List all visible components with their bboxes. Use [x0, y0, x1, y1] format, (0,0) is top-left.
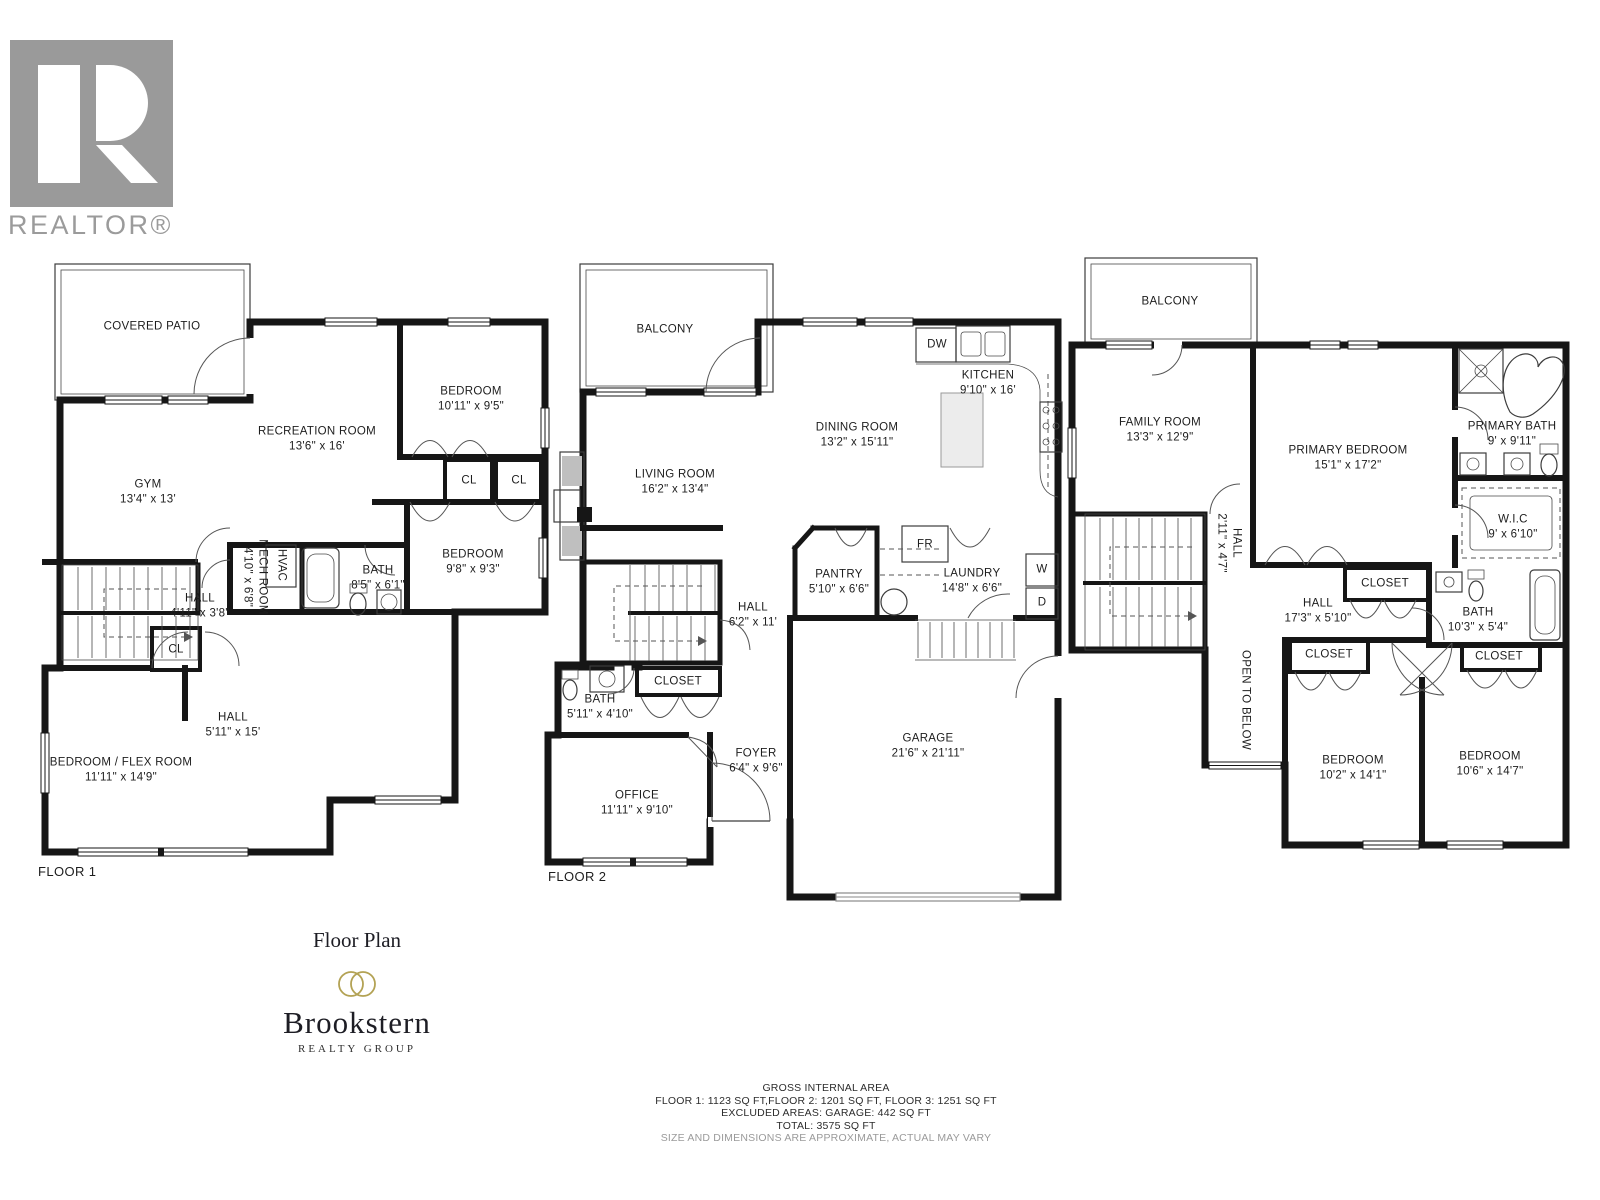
room-label-bedroom-flex: BEDROOM / FLEX ROOM 11'11" x 14'9"	[50, 755, 192, 784]
room-label-family-room: FAMILY ROOM 13'3" x 12'9"	[1119, 415, 1201, 444]
floor-areas-line: FLOOR 1: 1123 SQ FT,FLOOR 2: 1201 SQ FT,…	[426, 1096, 1226, 1108]
excluded-areas-line: EXCLUDED AREAS: GARAGE: 442 SQ FT	[426, 1108, 1226, 1120]
room-label-hvac: HVAC	[274, 549, 289, 581]
room-label-open-to-below: OPEN TO BELOW	[1238, 650, 1253, 750]
disclaimer-line: SIZE AND DIMENSIONS ARE APPROXIMATE, ACT…	[426, 1133, 1226, 1145]
room-label-hall-small-f3: HALL 2'11" x 4'7"	[1214, 513, 1243, 572]
room-label-bedroom-1: BEDROOM 10'11" x 9'5"	[438, 384, 504, 413]
total-area-line: TOTAL: 3575 SQ FT	[426, 1121, 1226, 1133]
room-label-cl-1: CL	[461, 474, 476, 489]
room-label-closet-right-f3: CLOSET	[1475, 650, 1523, 665]
room-label-dining-room: DINING ROOM 13'2" x 15'11"	[816, 420, 899, 449]
room-label-bedroom-3: BEDROOM 10'2" x 14'1"	[1320, 753, 1387, 782]
gross-internal-area-heading: GROSS INTERNAL AREA	[426, 1083, 1226, 1095]
brand-name: Brookstern	[217, 1005, 497, 1041]
room-label-hall-f2: HALL 6'2" x 11'	[729, 600, 777, 629]
room-label-recreation-room: RECREATION ROOM 13'6" x 16'	[258, 424, 376, 453]
area-summary: GROSS INTERNAL AREA FLOOR 1: 1123 SQ FT,…	[426, 1083, 1226, 1146]
room-label-wic: W.I.C 9' x 6'10"	[1488, 512, 1537, 541]
room-label-bath-f3: BATH 10'3" x 5'4"	[1448, 605, 1508, 634]
room-label-kitchen: KITCHEN 9'10" x 16'	[960, 368, 1016, 397]
room-label-gym: GYM 13'4" x 13'	[120, 477, 176, 506]
brand-block: Floor Plan Brookstern REALTY GROUP	[217, 928, 497, 1055]
room-label-dw: DW	[927, 338, 947, 353]
room-label-closet-f2: CLOSET	[654, 675, 702, 690]
room-label-fr: FR	[917, 538, 933, 553]
floor1-tag: FLOOR 1	[38, 864, 96, 879]
room-label-bath-f1: BATH 8'5" x 6'1"	[351, 563, 405, 592]
room-label-hall-f3: HALL 17'3" x 5'10"	[1285, 596, 1352, 625]
room-label-primary-bedroom: PRIMARY BEDROOM 15'1" x 17'2"	[1288, 443, 1407, 472]
room-label-laundry: LAUNDRY 14'8" x 6'6"	[942, 566, 1002, 595]
room-label-bedroom-2: BEDROOM 9'8" x 9'3"	[442, 547, 504, 576]
brand-subtitle: REALTY GROUP	[217, 1043, 497, 1055]
floor-plan-title: Floor Plan	[217, 928, 497, 953]
room-label-closet-left-f3: CLOSET	[1305, 648, 1353, 663]
room-label-balcony-f3: BALCONY	[1141, 295, 1198, 310]
room-label-pantry: PANTRY 5'10" x 6'6"	[809, 567, 869, 596]
room-label-hall-f1: HALL 5'11" x 15'	[205, 710, 260, 739]
room-label-washer: W	[1036, 563, 1047, 578]
room-label-garage: GARAGE 21'6" x 21'11"	[892, 731, 965, 760]
room-label-balcony-f2: BALCONY	[636, 323, 693, 338]
room-label-cl-2: CL	[511, 474, 526, 489]
room-label-bath-f2: BATH 5'11" x 4'10"	[567, 692, 633, 721]
room-label-living-room: LIVING ROOM 16'2" x 13'4"	[635, 467, 715, 496]
room-label-foyer: FOYER 6'4" x 9'6"	[729, 746, 783, 775]
room-label-cl-3: CL	[168, 643, 183, 658]
room-label-primary-bath: PRIMARY BATH 9' x 9'11"	[1468, 419, 1557, 448]
floor2-tag: FLOOR 2	[548, 869, 606, 884]
brand-rings-icon	[217, 967, 497, 1001]
room-label-office: OFFICE 11'11" x 9'10"	[601, 788, 673, 817]
room-label-covered-patio: COVERED PATIO	[104, 320, 201, 335]
room-label-closet-top-f3: CLOSET	[1361, 577, 1409, 592]
room-label-hall-small-f1: HALL 4'11" x 3'8"	[170, 591, 229, 620]
room-label-dryer: D	[1038, 596, 1047, 611]
floor-plan-page: REALTOR®	[0, 0, 1600, 1200]
room-label-mech-room: MECH ROOM 4'10" x 6'8"	[240, 539, 269, 615]
room-label-bedroom-4: BEDROOM 10'6" x 14'7"	[1457, 749, 1524, 778]
